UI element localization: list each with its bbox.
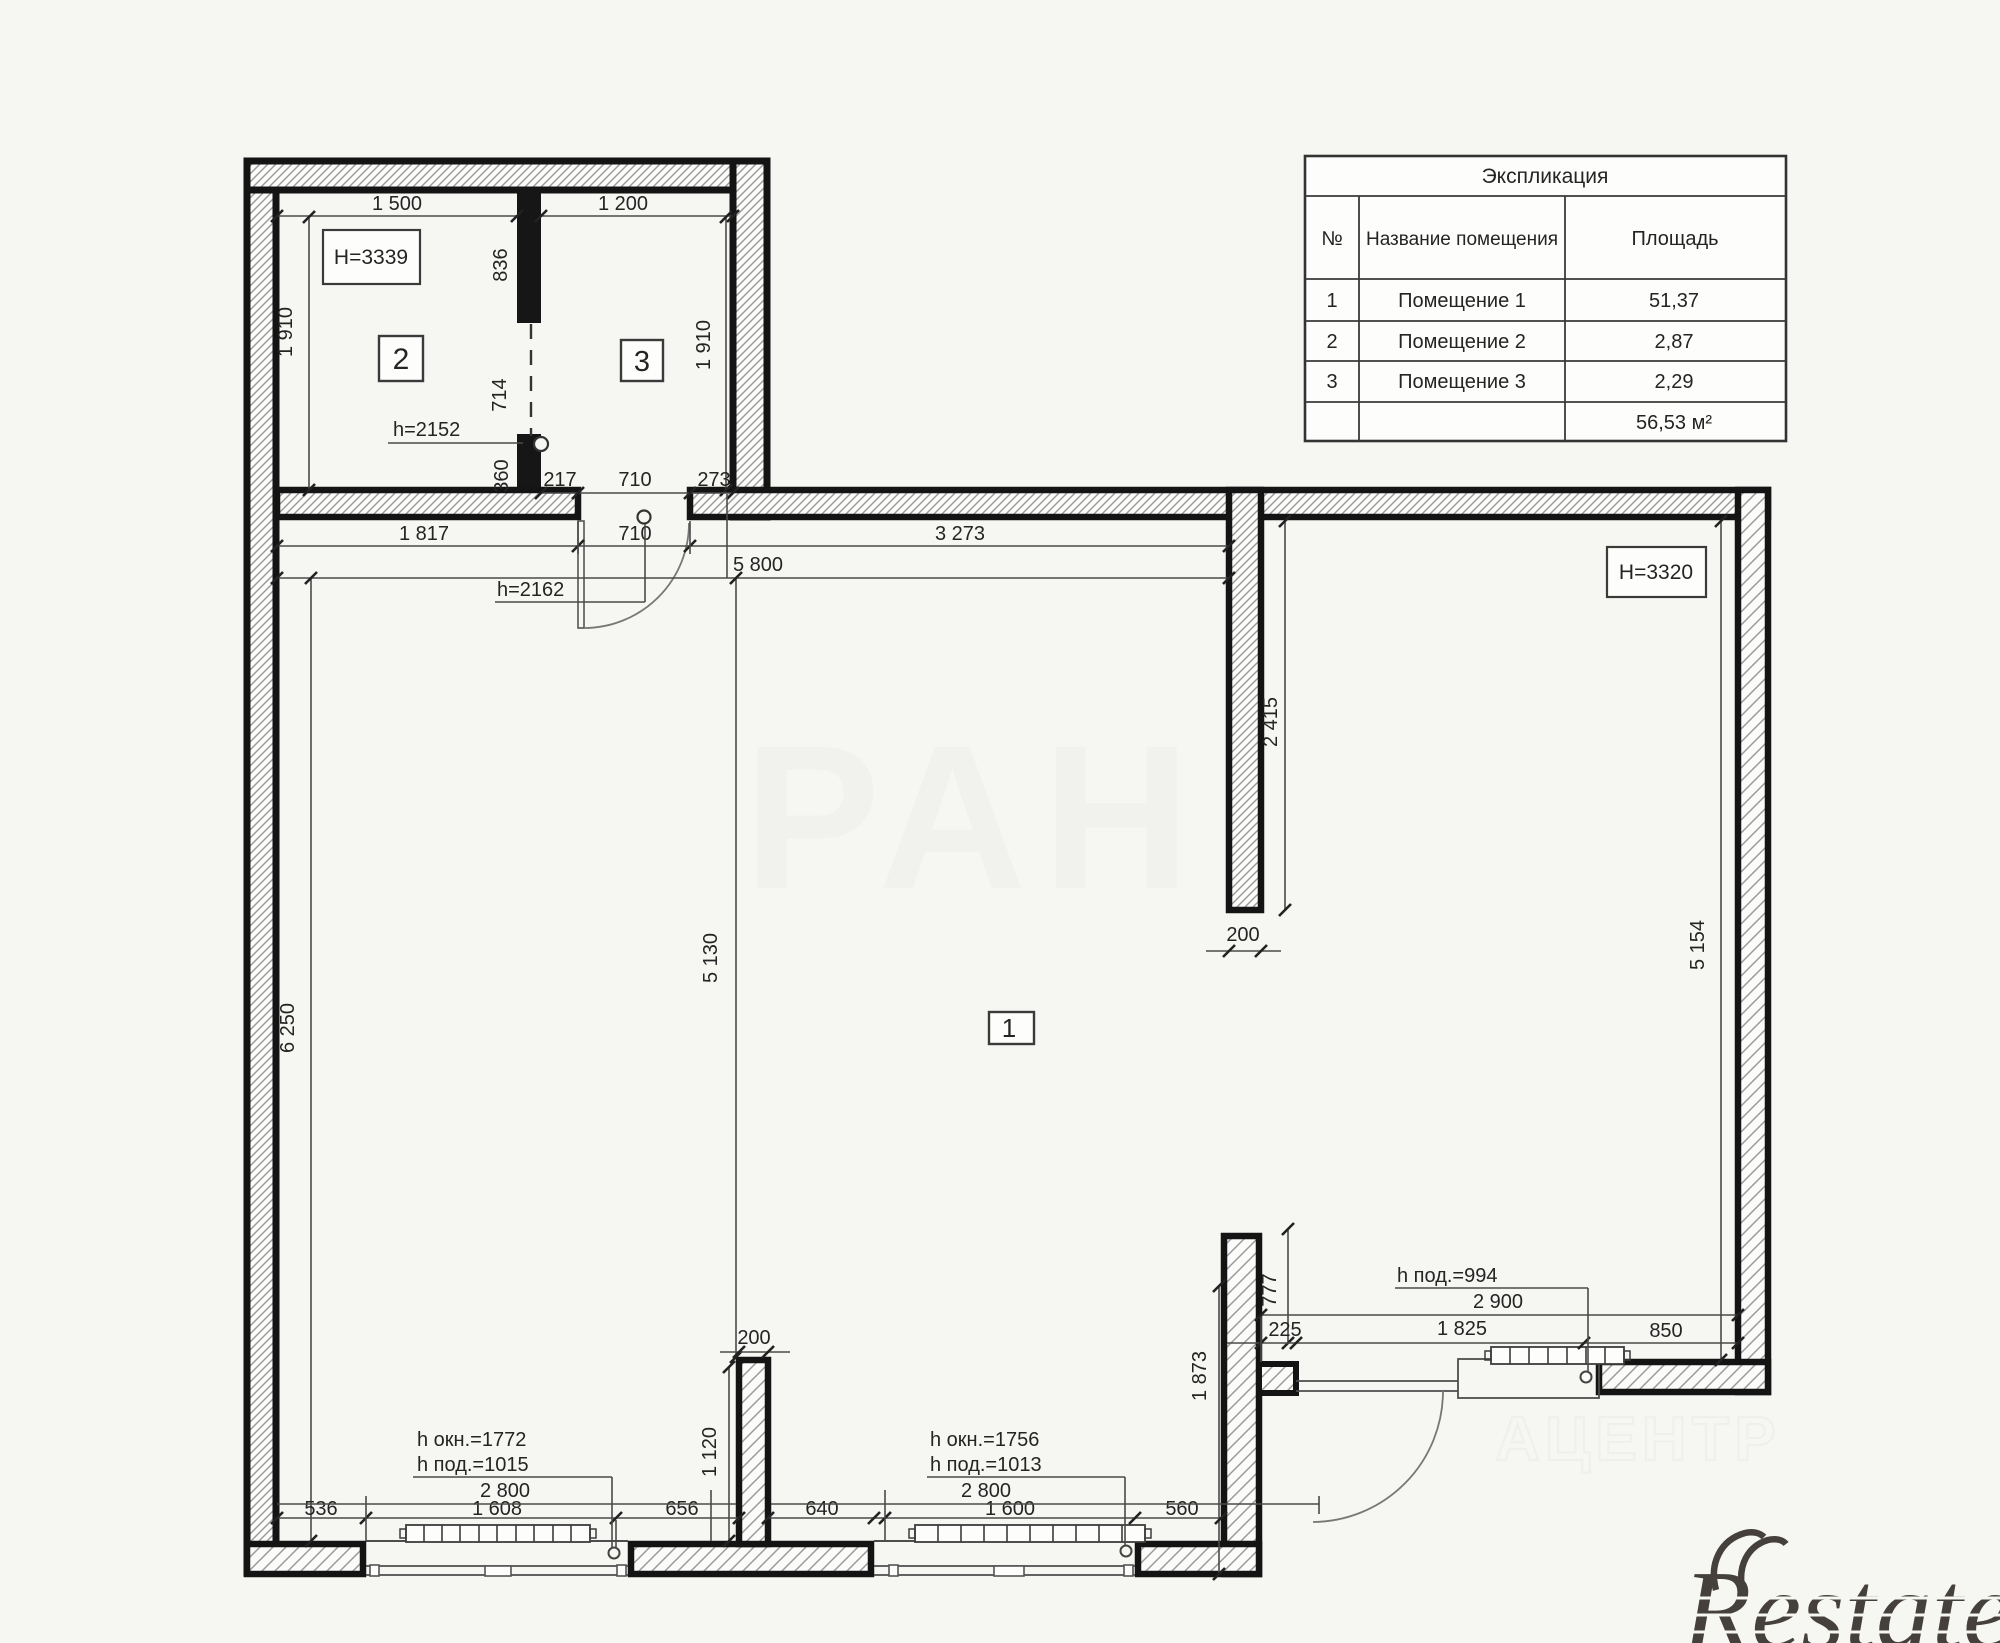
svg-text:3: 3 bbox=[1326, 371, 1337, 393]
svg-text:h=2162: h=2162 bbox=[497, 579, 564, 601]
svg-text:850: 850 bbox=[1649, 1320, 1682, 1342]
svg-text:6 250: 6 250 bbox=[277, 1003, 299, 1053]
svg-text:h=2152: h=2152 bbox=[393, 419, 460, 441]
svg-text:АЦЕНТР: АЦЕНТР bbox=[1495, 1405, 1780, 1474]
svg-text:Экспликация: Экспликация bbox=[1482, 165, 1609, 188]
svg-text:56,53 м²: 56,53 м² bbox=[1636, 412, 1712, 434]
svg-text:h под.=1013: h под.=1013 bbox=[930, 1454, 1042, 1476]
svg-text:1 817: 1 817 bbox=[399, 523, 449, 545]
svg-text:№: № bbox=[1321, 228, 1342, 250]
svg-text:Restate: Restate bbox=[1682, 1549, 2000, 1643]
svg-text:h окн.=1756: h окн.=1756 bbox=[930, 1429, 1039, 1451]
svg-text:1: 1 bbox=[1002, 1013, 1016, 1043]
svg-text:710: 710 bbox=[618, 469, 651, 491]
svg-text:1 910: 1 910 bbox=[275, 307, 297, 357]
svg-text:h под.=994: h под.=994 bbox=[1397, 1265, 1497, 1287]
svg-text:1 500: 1 500 bbox=[372, 193, 422, 215]
svg-text:Название помещения: Название помещения bbox=[1366, 229, 1558, 250]
svg-text:2: 2 bbox=[393, 343, 410, 376]
svg-text:273: 273 bbox=[697, 469, 730, 491]
svg-text:200: 200 bbox=[1226, 924, 1259, 946]
svg-text:1: 1 bbox=[1326, 290, 1337, 312]
svg-text:1 910: 1 910 bbox=[693, 320, 715, 370]
svg-text:2 800: 2 800 bbox=[961, 1480, 1011, 1502]
svg-text:217: 217 bbox=[543, 469, 576, 491]
svg-text:3 273: 3 273 bbox=[935, 523, 985, 545]
svg-text:3: 3 bbox=[634, 346, 650, 378]
svg-text:Площадь: Площадь bbox=[1631, 228, 1718, 250]
svg-text:640: 640 bbox=[805, 1498, 838, 1520]
svg-text:h окн.=1772: h окн.=1772 bbox=[417, 1429, 526, 1451]
svg-text:200: 200 bbox=[737, 1327, 770, 1349]
svg-text:h под.=1015: h под.=1015 bbox=[417, 1454, 529, 1476]
svg-text:710: 710 bbox=[618, 523, 651, 545]
svg-text:714: 714 bbox=[489, 378, 511, 411]
svg-text:225: 225 bbox=[1268, 1319, 1301, 1341]
svg-text:2,29: 2,29 bbox=[1655, 371, 1694, 393]
svg-text:H=3339: H=3339 bbox=[334, 246, 408, 269]
svg-text:536: 536 bbox=[304, 1498, 337, 1520]
svg-text:Помещение 2: Помещение 2 bbox=[1398, 331, 1526, 353]
svg-text:2 415: 2 415 bbox=[1260, 697, 1282, 747]
svg-text:1 200: 1 200 bbox=[598, 193, 648, 215]
svg-text:560: 560 bbox=[1165, 1498, 1198, 1520]
svg-text:1 825: 1 825 bbox=[1437, 1318, 1487, 1340]
svg-text:360: 360 bbox=[491, 459, 513, 492]
svg-text:2 900: 2 900 bbox=[1473, 1291, 1523, 1313]
svg-text:1 873: 1 873 bbox=[1189, 1351, 1211, 1401]
svg-text:836: 836 bbox=[490, 248, 512, 281]
svg-text:2,87: 2,87 bbox=[1655, 331, 1694, 353]
svg-text:5 154: 5 154 bbox=[1687, 920, 1709, 970]
svg-text:656: 656 bbox=[665, 1498, 698, 1520]
svg-text:777: 777 bbox=[1259, 1273, 1281, 1306]
svg-text:1 120: 1 120 bbox=[699, 1427, 721, 1477]
svg-text:2: 2 bbox=[1326, 331, 1337, 353]
svg-text:2 800: 2 800 bbox=[480, 1480, 530, 1502]
svg-text:51,37: 51,37 bbox=[1649, 290, 1699, 312]
svg-text:Помещение 3: Помещение 3 bbox=[1398, 371, 1526, 393]
svg-text:Помещение 1: Помещение 1 bbox=[1398, 290, 1526, 312]
svg-text:5 130: 5 130 bbox=[700, 933, 722, 983]
svg-text:H=3320: H=3320 bbox=[1619, 561, 1693, 584]
svg-text:РАН: РАН bbox=[744, 703, 1207, 932]
